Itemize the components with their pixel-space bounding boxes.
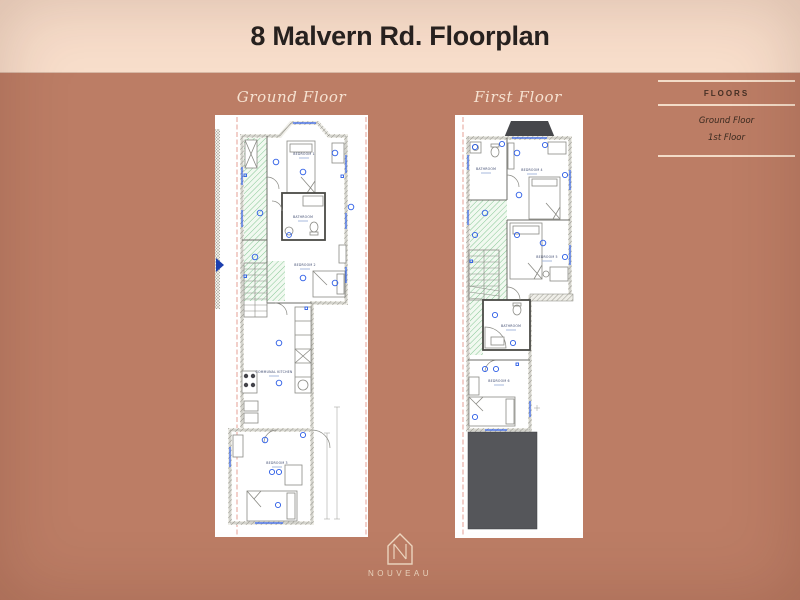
brand-logo: NOUVEAU: [350, 531, 450, 578]
party-wall: [215, 129, 220, 309]
first-floor-heading: First Floor: [448, 88, 588, 108]
detector-symbol: [269, 469, 274, 474]
divider: [658, 155, 795, 157]
door-arc: [272, 201, 282, 211]
door-arc: [507, 175, 519, 187]
room-label: BEDROOM 4: [521, 168, 542, 172]
bedroom3-furniture: [233, 435, 302, 521]
floors-navigation: FLOORS Ground Floor 1st Floor: [658, 80, 795, 157]
door-arc: [267, 177, 279, 189]
parapet-wall: [530, 294, 573, 301]
page: 8 Malvern Rd. Floorplan Ground Floor Fir…: [0, 0, 800, 600]
door-arc: [275, 303, 287, 315]
room-label: BEDROOM 1: [293, 152, 314, 156]
ground-floor-heading: Ground Floor: [215, 88, 368, 108]
room-label: BATHROOM: [293, 215, 313, 219]
door-arc: [507, 287, 520, 300]
ground-floor-plan: BEDROOM 1 BATHROOM BEDROOM 2: [215, 115, 368, 537]
dimension-lines: [324, 407, 340, 519]
room-label: BEDROOM 5: [536, 255, 557, 259]
header-banner: 8 Malvern Rd. Floorplan: [0, 0, 800, 73]
bedroom2-furniture: [313, 245, 346, 297]
nav-item-ground-floor[interactable]: Ground Floor: [658, 116, 795, 126]
room-label: BATHROOM: [476, 167, 496, 171]
brand-name: NOUVEAU: [350, 569, 450, 578]
bedroom5-furniture: [510, 223, 568, 281]
ground-floor-drawing: BEDROOM 1 BATHROOM BEDROOM 2: [215, 115, 368, 537]
entry-door-arc: [312, 430, 330, 448]
flat-roof: [468, 432, 537, 529]
nav-item-first-floor[interactable]: 1st Floor: [658, 133, 795, 143]
bedroom4-furniture: [529, 142, 566, 219]
room-label: BEDROOM 3: [266, 461, 287, 465]
first-floor-drawing: BATHROOM BEDROOM 4: [455, 115, 583, 538]
house-logo-icon: [383, 531, 417, 567]
dimension-lines: [534, 405, 540, 411]
page-title: 8 Malvern Rd. Floorplan: [250, 21, 549, 52]
detector-symbol: [276, 469, 281, 474]
roof-gable: [504, 121, 555, 138]
room-label: BEDROOM 2: [294, 263, 315, 267]
room-label: BEDROOM 6: [488, 379, 509, 383]
kitchen-units: [242, 307, 311, 423]
bedroom6-furniture: [469, 377, 515, 426]
floors-nav-heading: FLOORS: [658, 82, 795, 104]
room-label: BATHROOM: [501, 324, 521, 328]
room-label: COMMUNAL KITCHEN: [256, 370, 293, 374]
divider: [658, 104, 795, 106]
first-floor-plan: BATHROOM BEDROOM 4: [455, 115, 583, 538]
